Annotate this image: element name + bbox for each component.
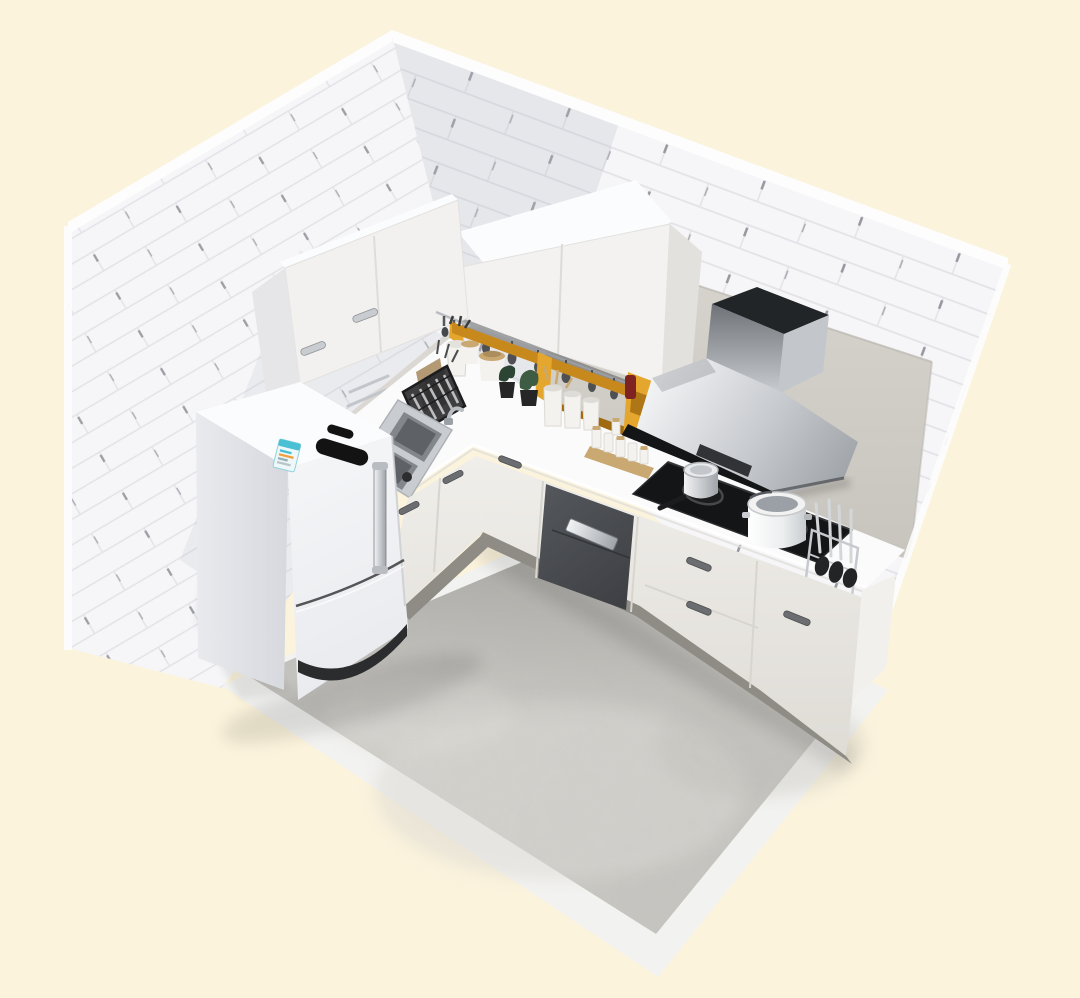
fridge-handle xyxy=(374,466,386,570)
kitchen-render xyxy=(0,0,1080,998)
stockpot xyxy=(742,492,812,549)
left-wall-cut-edge xyxy=(64,226,72,650)
kitchen-render-svg xyxy=(0,0,1080,998)
pot-handle xyxy=(742,512,750,518)
drain-knob xyxy=(402,472,412,482)
red-bottle xyxy=(625,375,636,399)
pot-handle xyxy=(804,514,812,520)
